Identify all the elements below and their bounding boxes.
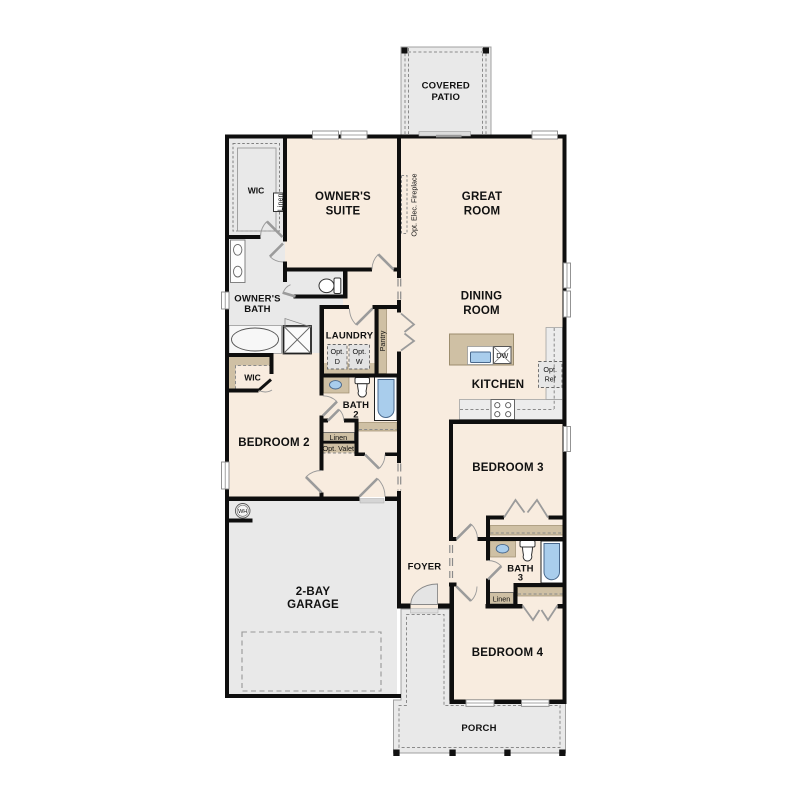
svg-text:Opt.: Opt. (353, 347, 367, 356)
svg-text:ROOM: ROOM (463, 305, 500, 317)
svg-text:DW: DW (496, 351, 508, 360)
svg-text:BEDROOM 2: BEDROOM 2 (238, 437, 309, 449)
svg-text:OWNER'S: OWNER'S (315, 191, 371, 203)
svg-text:WH: WH (238, 509, 247, 515)
svg-text:2-BAY: 2-BAY (296, 586, 331, 598)
svg-text:ROOM: ROOM (464, 206, 501, 218)
svg-text:Linen: Linen (493, 595, 511, 604)
svg-text:Pantry: Pantry (378, 330, 387, 351)
svg-text:DINING: DINING (461, 291, 502, 303)
svg-text:3: 3 (518, 573, 523, 584)
svg-text:2: 2 (353, 410, 358, 421)
svg-text:GARAGE: GARAGE (287, 599, 339, 611)
svg-text:Linen: Linen (330, 433, 348, 442)
svg-text:Opt. Elec. Fireplace: Opt. Elec. Fireplace (410, 173, 419, 236)
svg-text:FOYER: FOYER (408, 562, 442, 573)
svg-text:OWNER'S: OWNER'S (234, 294, 280, 305)
svg-text:SUITE: SUITE (326, 206, 361, 218)
svg-text:Opt. Valet: Opt. Valet (323, 444, 354, 453)
svg-text:WIC: WIC (244, 373, 261, 383)
svg-text:KITCHEN: KITCHEN (472, 379, 525, 391)
svg-text:PORCH: PORCH (461, 723, 496, 734)
svg-text:LAUNDRY: LAUNDRY (326, 330, 374, 341)
svg-text:COVERED: COVERED (422, 81, 470, 92)
svg-text:Opt.: Opt. (331, 347, 345, 356)
svg-text:D: D (335, 357, 340, 366)
svg-text:WIC: WIC (248, 186, 265, 196)
svg-text:W: W (356, 357, 363, 366)
svg-text:BEDROOM 4: BEDROOM 4 (472, 647, 544, 659)
svg-text:GREAT: GREAT (462, 191, 502, 203)
svg-text:Opt.: Opt. (543, 365, 557, 374)
svg-text:BATH: BATH (244, 304, 270, 315)
svg-text:PATIO: PATIO (431, 92, 460, 103)
svg-text:BEDROOM 3: BEDROOM 3 (472, 462, 543, 474)
